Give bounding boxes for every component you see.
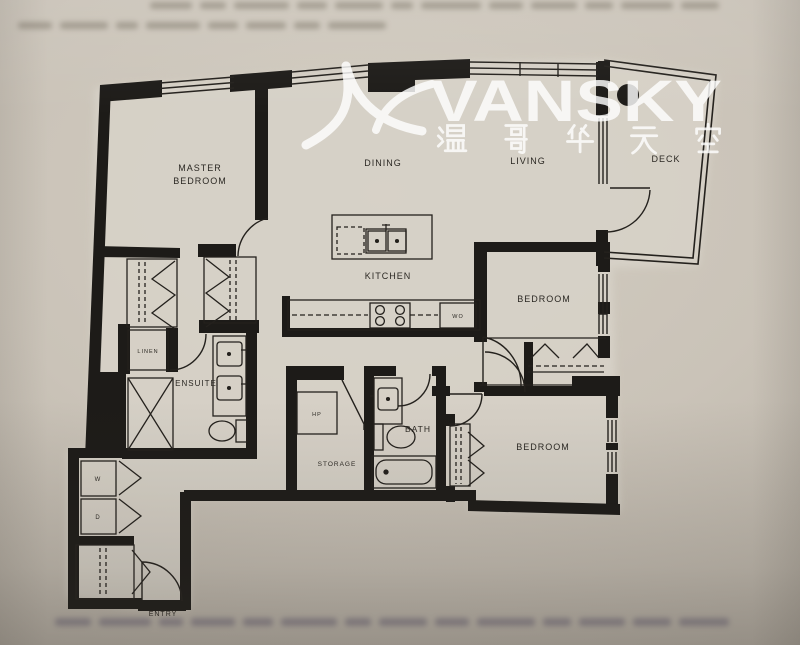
label-heat-pump: HP xyxy=(312,412,322,418)
floorplan-drawing: MASTER BEDROOM DINING LIVING DECK KITCHE… xyxy=(0,0,800,645)
room-label-dining: DINING xyxy=(364,158,402,168)
room-label-master-bedroom: BEDROOM xyxy=(173,176,227,186)
watermark-brand-text: VANSKY xyxy=(430,69,722,134)
room-label-living: LIVING xyxy=(510,156,546,166)
room-label-master-bedroom: MASTER xyxy=(178,163,222,173)
label-wall-oven: WO xyxy=(452,314,463,320)
floorplan-photo: MASTER BEDROOM DINING LIVING DECK KITCHE… xyxy=(0,0,800,645)
label-dryer: D xyxy=(95,515,100,521)
room-label-entry: ENTRY xyxy=(149,611,178,618)
room-label-kitchen: KITCHEN xyxy=(365,271,412,281)
room-label-bedroom-lower: BEDROOM xyxy=(516,442,570,452)
room-label-deck: DECK xyxy=(651,154,680,164)
room-label-bedroom-mid: BEDROOM xyxy=(517,294,571,304)
room-label-ensuite: ENSUITE xyxy=(175,379,217,388)
room-label-linen: LINEN xyxy=(137,349,158,355)
label-washer: W xyxy=(95,477,102,483)
room-label-storage: STORAGE xyxy=(318,461,357,468)
room-label-bath: BATH xyxy=(405,424,431,434)
